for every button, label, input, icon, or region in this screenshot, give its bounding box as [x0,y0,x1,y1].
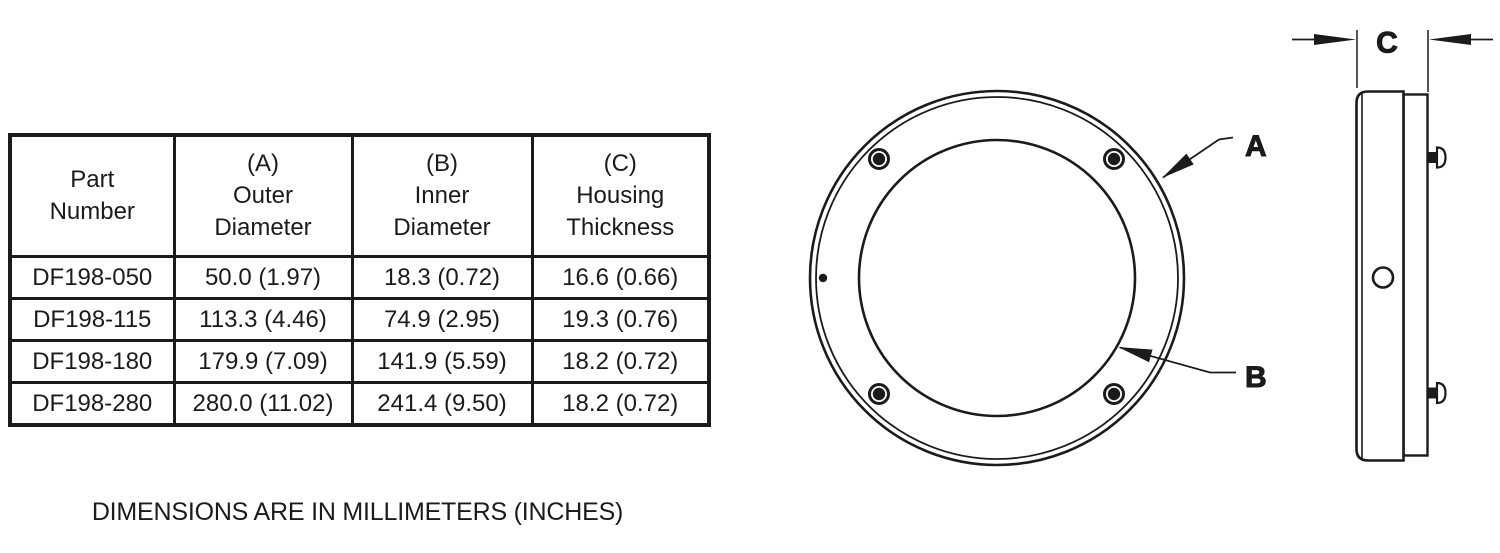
label-b: B [1245,361,1267,394]
mounting-screw [1427,383,1446,403]
pilot-hole-dot [819,274,827,282]
front-view: A B [810,91,1267,465]
dimension-arrow-right [1429,34,1493,45]
back-plate [1404,95,1428,456]
technical-drawing: A B C [0,0,1500,553]
leader-a-arrowhead [1162,154,1194,178]
dimension-arrow-left [1292,34,1356,45]
spec-sheet-page: Part Number (A) Outer Diameter (B) Inner… [0,0,1500,553]
leader-a [1162,138,1233,179]
label-c: C [1376,27,1398,60]
label-a: A [1245,130,1267,163]
mounting-screw [1427,148,1446,168]
outer-rim-circle [810,91,1184,465]
center-hole [1373,268,1393,288]
side-view: C [1292,27,1493,461]
